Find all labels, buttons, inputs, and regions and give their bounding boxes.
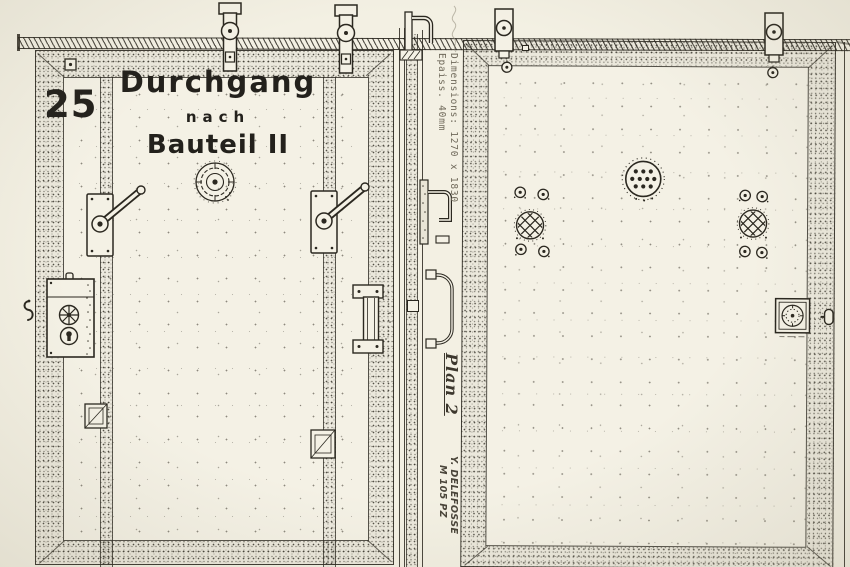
roller-hanger-icon [759,12,789,64]
corner-miter [465,43,489,66]
profile-line [422,30,423,567]
corner-miter [39,541,64,564]
dimension-line: Dimensions: 1270 x 1830 [447,53,459,263]
roller-hanger-icon [489,8,519,60]
vent-grille-icon [618,154,668,204]
bolt-icon [499,59,515,75]
rail-end-cap [17,34,20,51]
bolt-icon [754,189,770,205]
profile-line [404,28,405,567]
bolt-icon [754,245,770,261]
roller-hanger-icon [215,2,245,74]
handwritten-note-icon [444,4,464,54]
corner-miter [37,53,64,77]
bolt-icon [62,56,79,73]
door-label-line3: Bauteil II [98,130,338,160]
valve-rosette-icon [733,203,775,245]
title-block: Y. DELEFOSSE M 105 PZ [437,456,459,548]
wall-edge-line [844,42,845,567]
roller-hanger-icon [398,10,440,62]
lever-handle-icon [309,181,381,259]
bolt-icon [536,243,552,259]
hinge-plate-icon [309,428,337,460]
bolt-icon [513,241,529,257]
bolt-icon [512,184,528,200]
bolt-icon [407,300,419,312]
author-name: Y. DELEFOSSE [448,456,459,548]
corner-miter [366,53,391,76]
hinge-plate-icon [83,402,109,430]
roller-hanger-icon [331,4,361,76]
dimension-note: Dimensions: 1270 x 1830 Epaiss. 40mm [435,53,459,263]
door-number: 25 [44,83,98,126]
door-label-block: Durchgang nach Bauteil II [98,65,338,160]
corner-miter [807,546,831,567]
stamp-icon [773,297,813,341]
bolt-icon [737,243,753,259]
left-door: 25 Durchgang nach Bauteil II [35,50,394,565]
corner-miter [367,540,392,562]
rosette-icon [192,159,238,205]
door-label-line2: nach [98,108,338,126]
right-door-panel [485,65,809,548]
lever-handle-icon [85,184,157,262]
bolt-icon [522,45,529,51]
plan-label: Plan 2 [442,353,461,425]
lock-plate-icon [42,271,100,371]
right-door [460,40,836,567]
thickness-line: Epaiss. 40mm [435,53,447,263]
bolt-icon [765,65,781,81]
scanned-drawing-sheet: 25 Durchgang nach Bauteil II [0,0,850,567]
hook-icon [20,298,34,326]
drawing-reference: M 105 PZ [437,456,448,548]
profile-line [399,28,400,567]
pull-handle-icon [350,282,394,356]
corner-miter [464,546,488,566]
bolt-icon [535,186,551,202]
knob-icon [820,307,836,327]
corner-miter [808,45,833,68]
pull-handle-icon [424,266,458,354]
bolt-icon [737,187,753,203]
